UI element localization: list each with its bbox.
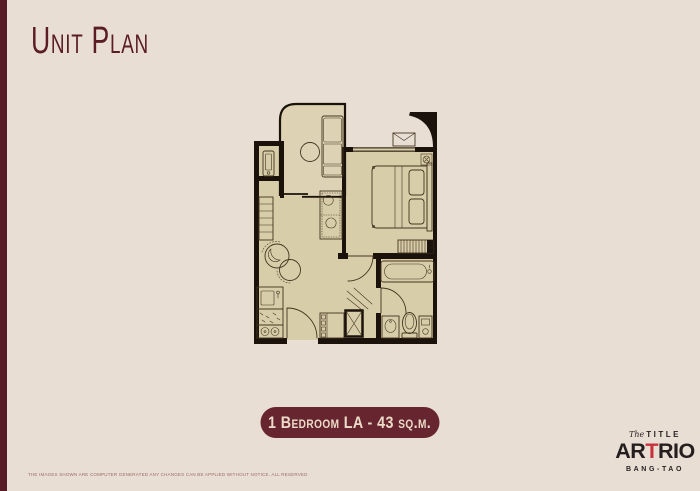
unit-type-label: 1 Bedroom LA - 43 sq.m. bbox=[268, 413, 431, 433]
brand-logo-main: ARTRIO bbox=[610, 441, 700, 463]
unit-type-badge: 1 Bedroom LA - 43 sq.m. bbox=[261, 407, 440, 438]
curved-corner-wall bbox=[409, 112, 437, 147]
left-accent-bar bbox=[0, 0, 7, 491]
disclaimer-text: THE IMAGES SHOWN ARE COMPUTER GENERATED … bbox=[28, 472, 308, 477]
brand-logo: TheTITLE ARTRIO BANG-TAO bbox=[610, 431, 700, 473]
brand-main-post: RIO bbox=[658, 439, 695, 463]
bedroom-window bbox=[353, 148, 415, 152]
brand-main-accent: T bbox=[645, 439, 658, 463]
floor-plan-svg bbox=[250, 95, 445, 345]
brand-prefix: The bbox=[629, 430, 644, 439]
brochure-page: Unit Plan bbox=[0, 0, 700, 491]
brand-top-word: TITLE bbox=[646, 430, 681, 439]
page-title: Unit Plan bbox=[31, 20, 149, 63]
floor-plan bbox=[250, 95, 445, 345]
brand-sub-word: BANG-TAO bbox=[610, 466, 700, 473]
brand-main-pre: AR bbox=[615, 439, 645, 463]
service-shaft-icon bbox=[346, 311, 363, 337]
ac-condenser-icon bbox=[393, 133, 415, 146]
brand-logo-top: TheTITLE bbox=[610, 431, 700, 439]
